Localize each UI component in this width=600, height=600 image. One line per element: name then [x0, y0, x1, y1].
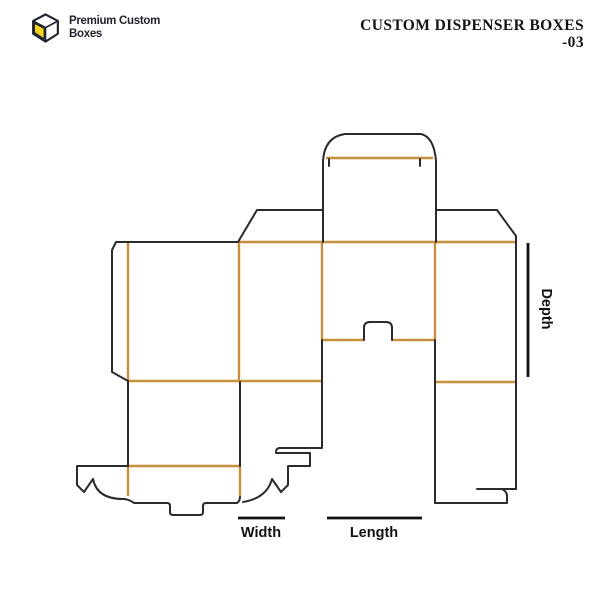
top-right-dust-flap — [436, 210, 516, 242]
tuck-slits — [329, 159, 420, 166]
bottom-left-wing — [77, 466, 128, 499]
bottom-tuck-tab — [123, 497, 240, 515]
top-left-dust-flap — [238, 210, 323, 242]
center-left-lock-flap — [243, 340, 322, 502]
width-label: Width — [241, 525, 281, 541]
bottom-panel-sides — [128, 382, 240, 466]
page: Premium Custom Boxes CUSTOM DISPENSER BO… — [0, 0, 600, 600]
length-label: Length — [350, 525, 398, 541]
glue-flap — [112, 242, 238, 381]
thumb-notch — [364, 322, 392, 340]
tuck-flap — [323, 134, 436, 242]
cut-lines — [77, 134, 516, 515]
bottom-right-flap-edge — [435, 489, 507, 503]
depth-label: Depth — [538, 288, 554, 329]
dieline-diagram: Width Length Depth — [0, 0, 600, 600]
